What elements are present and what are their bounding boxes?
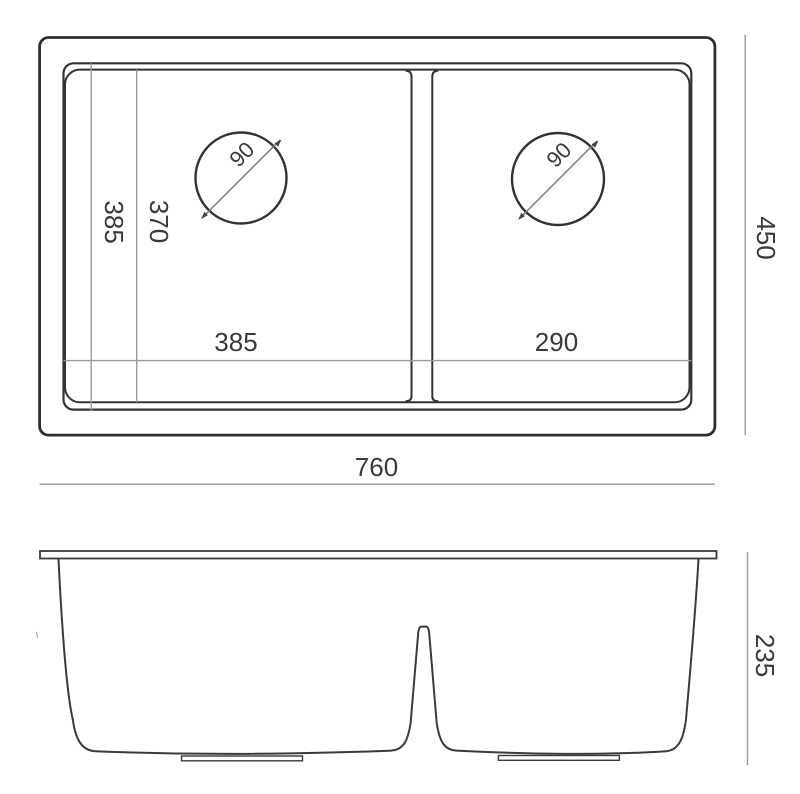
svg-text:290: 290	[535, 327, 578, 357]
svg-text:760: 760	[355, 452, 398, 482]
svg-text:450: 450	[751, 216, 781, 259]
svg-text:370: 370	[144, 200, 174, 243]
svg-text:385: 385	[99, 200, 129, 243]
svg-text:235: 235	[750, 634, 780, 677]
svg-text:385: 385	[214, 327, 257, 357]
